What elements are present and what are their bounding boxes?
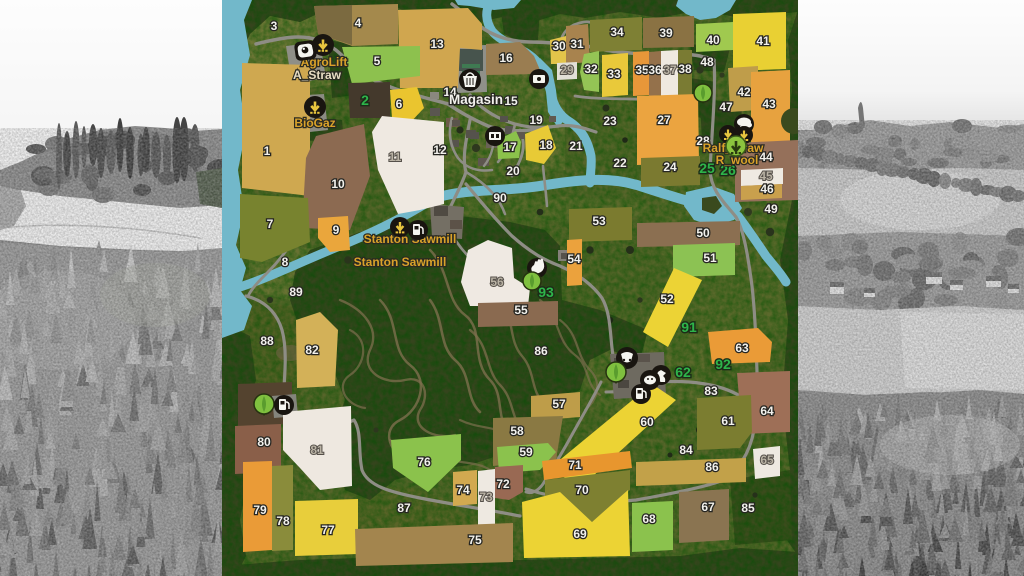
svg-text:43: 43 xyxy=(762,97,776,111)
svg-text:45: 45 xyxy=(759,169,773,183)
svg-text:64: 64 xyxy=(760,404,774,418)
svg-text:19: 19 xyxy=(529,113,543,127)
svg-text:90: 90 xyxy=(493,191,507,205)
svg-text:39: 39 xyxy=(659,26,673,40)
svg-text:86: 86 xyxy=(705,460,719,474)
svg-text:71: 71 xyxy=(568,458,582,472)
svg-text:1: 1 xyxy=(264,144,271,158)
svg-text:58: 58 xyxy=(510,424,524,438)
svg-text:53: 53 xyxy=(592,214,606,228)
svg-text:57: 57 xyxy=(552,397,566,411)
svg-text:20: 20 xyxy=(506,164,520,178)
svg-text:93: 93 xyxy=(538,284,554,300)
svg-text:85: 85 xyxy=(741,501,755,515)
svg-text:31: 31 xyxy=(570,37,584,51)
svg-text:48: 48 xyxy=(700,55,714,69)
svg-text:32: 32 xyxy=(584,62,598,76)
svg-text:41: 41 xyxy=(756,34,770,48)
svg-text:12: 12 xyxy=(433,143,447,157)
svg-text:15: 15 xyxy=(504,94,518,108)
svg-text:24: 24 xyxy=(663,160,677,174)
svg-text:BioGaz: BioGaz xyxy=(294,116,335,130)
svg-text:84: 84 xyxy=(679,443,693,457)
svg-text:38: 38 xyxy=(678,62,692,76)
svg-text:50: 50 xyxy=(696,226,710,240)
svg-text:4: 4 xyxy=(355,16,362,30)
svg-text:A_Straw: A_Straw xyxy=(293,68,342,82)
svg-text:16: 16 xyxy=(499,51,513,65)
svg-text:49: 49 xyxy=(764,202,778,216)
svg-text:86: 86 xyxy=(534,344,548,358)
svg-text:27: 27 xyxy=(657,113,671,127)
svg-text:54: 54 xyxy=(567,252,581,266)
svg-text:52: 52 xyxy=(660,292,674,306)
svg-text:37: 37 xyxy=(663,63,677,77)
svg-text:63: 63 xyxy=(735,341,749,355)
svg-text:11: 11 xyxy=(389,150,402,164)
svg-text:46: 46 xyxy=(760,182,774,196)
svg-text:91: 91 xyxy=(681,319,697,335)
svg-text:22: 22 xyxy=(613,156,627,170)
svg-text:25: 25 xyxy=(699,160,715,176)
svg-text:82: 82 xyxy=(305,343,319,357)
svg-text:51: 51 xyxy=(703,251,717,265)
svg-text:81: 81 xyxy=(310,443,324,457)
svg-text:67: 67 xyxy=(701,500,715,514)
svg-text:34: 34 xyxy=(610,25,624,39)
svg-text:9: 9 xyxy=(333,223,340,237)
svg-text:29: 29 xyxy=(560,63,574,77)
svg-text:59: 59 xyxy=(519,445,533,459)
svg-text:68: 68 xyxy=(642,512,656,526)
svg-text:77: 77 xyxy=(321,523,335,537)
svg-text:Stanton Sawmill: Stanton Sawmill xyxy=(354,255,447,269)
svg-text:47: 47 xyxy=(719,100,733,114)
svg-text:56: 56 xyxy=(490,275,504,289)
svg-text:60: 60 xyxy=(640,415,654,429)
svg-text:23: 23 xyxy=(603,114,617,128)
svg-text:92: 92 xyxy=(715,356,731,372)
svg-text:73: 73 xyxy=(479,490,493,504)
svg-text:5: 5 xyxy=(374,54,381,68)
svg-text:3: 3 xyxy=(271,19,278,33)
svg-text:62: 62 xyxy=(675,364,691,380)
svg-text:30: 30 xyxy=(552,39,566,53)
svg-text:17: 17 xyxy=(503,140,517,154)
svg-text:13: 13 xyxy=(430,37,444,51)
svg-text:76: 76 xyxy=(417,455,431,469)
svg-text:6: 6 xyxy=(396,97,403,111)
svg-text:10: 10 xyxy=(331,177,345,191)
svg-text:78: 78 xyxy=(276,514,290,528)
svg-text:35: 35 xyxy=(635,63,649,77)
svg-text:55: 55 xyxy=(514,303,528,317)
svg-text:69: 69 xyxy=(573,527,587,541)
svg-text:70: 70 xyxy=(575,483,589,497)
svg-text:18: 18 xyxy=(539,138,553,152)
svg-text:21: 21 xyxy=(569,139,583,153)
svg-text:75: 75 xyxy=(468,533,482,547)
svg-text:40: 40 xyxy=(706,33,720,47)
svg-text:87: 87 xyxy=(397,501,411,515)
svg-text:65: 65 xyxy=(760,453,774,467)
svg-text:72: 72 xyxy=(496,477,510,491)
svg-text:42: 42 xyxy=(737,85,751,99)
svg-text:88: 88 xyxy=(260,334,274,348)
svg-text:7: 7 xyxy=(267,217,274,231)
svg-text:2: 2 xyxy=(361,92,369,108)
svg-text:33: 33 xyxy=(607,67,621,81)
svg-text:61: 61 xyxy=(721,414,735,428)
svg-text:79: 79 xyxy=(253,503,267,517)
svg-text:83: 83 xyxy=(704,384,718,398)
svg-text:74: 74 xyxy=(456,483,470,497)
svg-text:89: 89 xyxy=(289,285,303,299)
svg-text:36: 36 xyxy=(648,63,662,77)
svg-text:Magasin: Magasin xyxy=(449,92,503,107)
svg-text:80: 80 xyxy=(257,435,271,449)
svg-text:8: 8 xyxy=(282,255,289,269)
